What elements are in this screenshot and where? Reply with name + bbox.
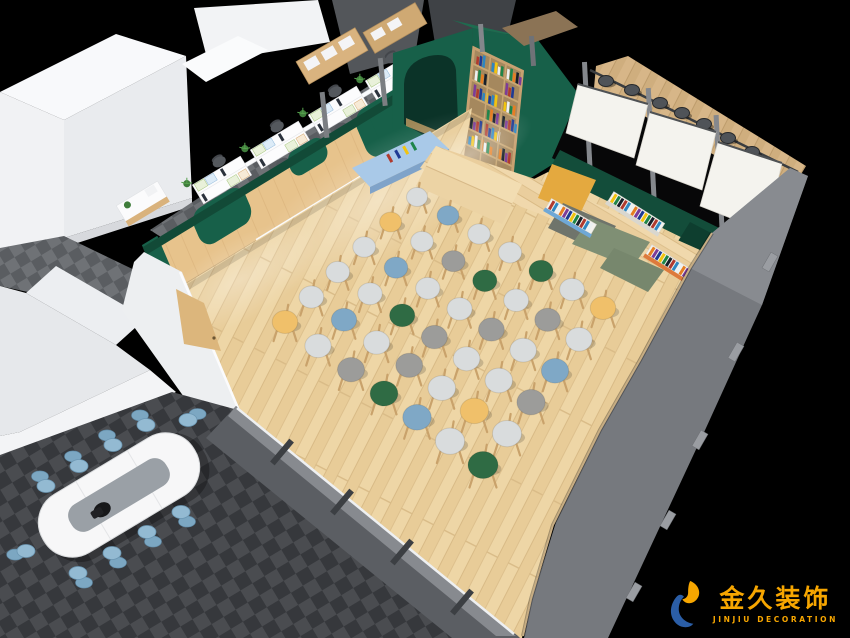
stool-cushion: [517, 390, 545, 415]
stool-cushion: [442, 251, 465, 272]
brand-name-cn: 金久装饰: [719, 586, 831, 612]
bar-stool-seat: [599, 76, 614, 87]
bar-stool-seat: [653, 98, 668, 109]
stool-cushion: [364, 331, 390, 354]
stool-cushion: [305, 334, 331, 358]
chair-seat: [172, 506, 190, 519]
stool-cushion: [460, 398, 488, 424]
stool-cushion: [560, 278, 585, 300]
chair-seat: [138, 526, 156, 539]
chair-seat: [69, 567, 87, 580]
stool-cushion: [510, 338, 537, 362]
stool-cushion: [396, 353, 423, 377]
stool-cushion: [326, 261, 350, 282]
stool-cushion: [380, 212, 402, 232]
stool-cushion: [504, 289, 529, 311]
chair-seat: [104, 439, 122, 452]
chair-seat: [70, 460, 88, 473]
render-canvas: 金久装饰 JINJIU DECORATION: [0, 0, 850, 638]
stool-cushion: [498, 242, 521, 263]
stool-cushion: [370, 381, 398, 406]
3d-interior-render: [0, 0, 850, 638]
stool-cushion: [299, 286, 324, 308]
stool-cushion: [453, 347, 480, 371]
stool-cushion: [485, 368, 512, 393]
stool-cushion: [428, 376, 456, 401]
bar-stool-seat: [721, 133, 736, 144]
stool-cushion: [390, 304, 415, 327]
stool-cushion: [416, 277, 440, 299]
stool-cushion: [353, 237, 376, 258]
stool-cushion: [435, 428, 464, 454]
chair-seat: [17, 545, 35, 558]
stool-cushion: [272, 311, 298, 334]
stool-cushion: [492, 421, 521, 447]
wall-left-block: [0, 92, 64, 256]
stool-cushion: [566, 328, 592, 352]
brand-logo: 金久装饰 JINJIU DECORATION: [664, 580, 838, 630]
stool-cushion: [541, 359, 568, 384]
stool-cushion: [331, 308, 356, 331]
brand-name-en: JINJIU DECORATION: [713, 615, 838, 624]
chair-seat: [137, 419, 155, 432]
stool-cushion: [447, 298, 472, 321]
chair-seat: [103, 547, 121, 560]
logo-swoosh-orange: [682, 581, 699, 603]
stool-cushion: [468, 452, 498, 479]
bar-stool-seat: [675, 108, 690, 119]
stool-cushion: [411, 231, 434, 251]
stool-cushion: [479, 318, 505, 341]
stool-cushion: [529, 260, 553, 282]
stool-cushion: [407, 188, 428, 207]
stool-cushion: [590, 297, 616, 320]
brand-text: 金久装饰 JINJIU DECORATION: [713, 586, 838, 623]
stool-cushion: [358, 283, 382, 305]
stool-cushion: [403, 405, 432, 431]
stool-cushion: [384, 257, 408, 278]
door-knob: [212, 336, 215, 339]
stool-cushion: [338, 358, 365, 382]
stool-cushion: [468, 224, 491, 244]
jinjiu-logo-icon: [664, 580, 706, 630]
chair-seat: [179, 414, 197, 427]
chair-seat: [37, 480, 55, 493]
stool-cushion: [535, 308, 561, 331]
stool-cushion: [437, 206, 459, 226]
bar-stool-seat: [625, 85, 640, 96]
stool-cushion: [421, 325, 447, 348]
stool-cushion: [473, 270, 497, 292]
